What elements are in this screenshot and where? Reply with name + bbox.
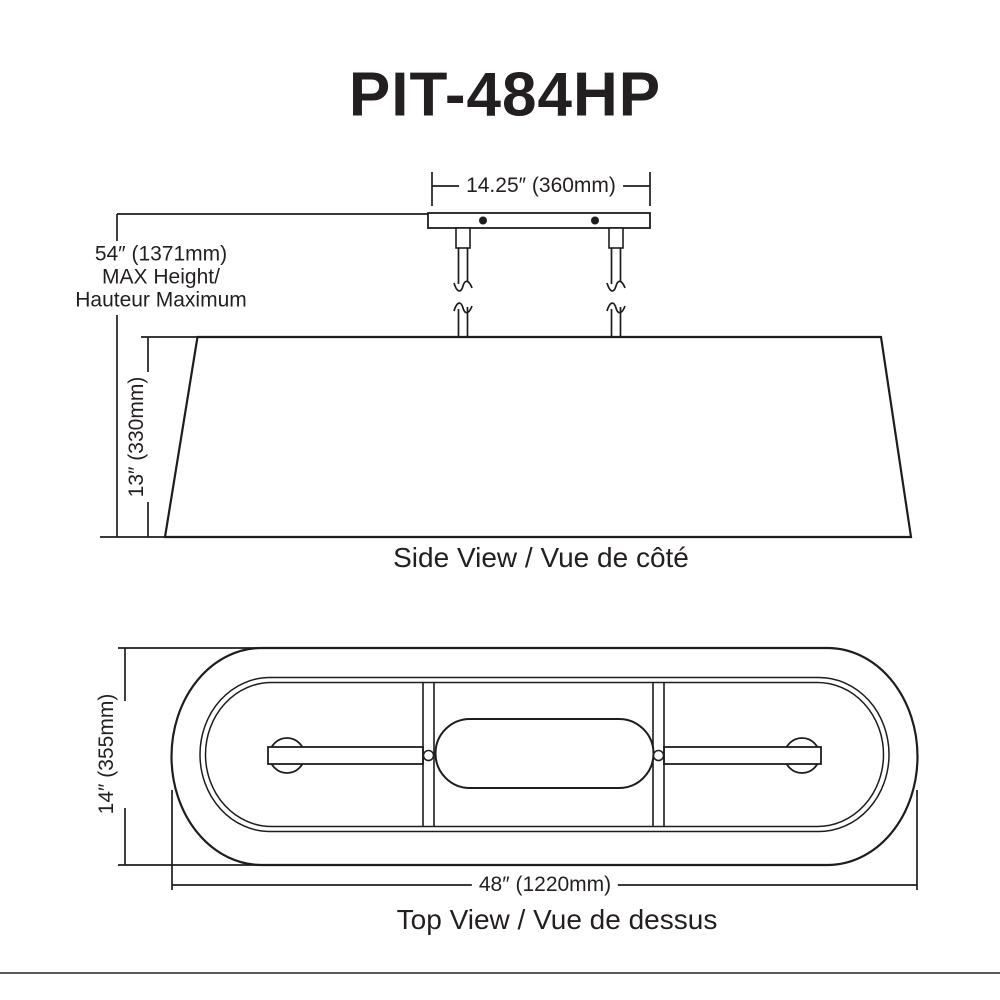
internal-frame [268, 682, 821, 827]
max-height-line1: 54″ (1371mm) [75, 243, 247, 266]
top-width-dim-label: 14″ (355mm) [95, 694, 119, 815]
spec-sheet: PIT-484HP 14.25″ (360mm) 54″ (1371mm) MA… [0, 0, 1000, 1000]
shade-height-dim-label: 13″ (330mm) [125, 377, 149, 498]
pivot-right [654, 751, 664, 761]
ceiling-canopy [428, 213, 650, 228]
top-length-dim-label: 48″ (1220mm) [472, 873, 618, 897]
center-body [436, 719, 654, 788]
pivot-left [424, 751, 434, 761]
top-width-dimension [118, 648, 261, 865]
suspension-rod-left [454, 228, 472, 337]
side-view-caption: Side View / Vue de côté [393, 542, 689, 574]
max-height-line3: Hauteur Maximum [75, 289, 247, 312]
diagram-linework [0, 0, 1000, 1000]
canopy-screw-left [479, 217, 487, 225]
bottom-divider-line [0, 972, 1000, 974]
arm-left [268, 747, 423, 764]
canopy-screw-right [591, 217, 599, 225]
suspension-rod-right [607, 228, 625, 337]
max-height-line2: MAX Height/ [75, 266, 247, 289]
canopy-width-dim-label: 14.25″ (360mm) [459, 174, 623, 198]
shade-side-profile [165, 337, 911, 537]
arm-right [664, 747, 821, 764]
max-height-label: 54″ (1371mm) MAX Height/ Hauteur Maximum [75, 243, 247, 312]
model-number-title: PIT-484HP [349, 60, 661, 131]
top-view-caption: Top View / Vue de dessus [397, 904, 718, 936]
